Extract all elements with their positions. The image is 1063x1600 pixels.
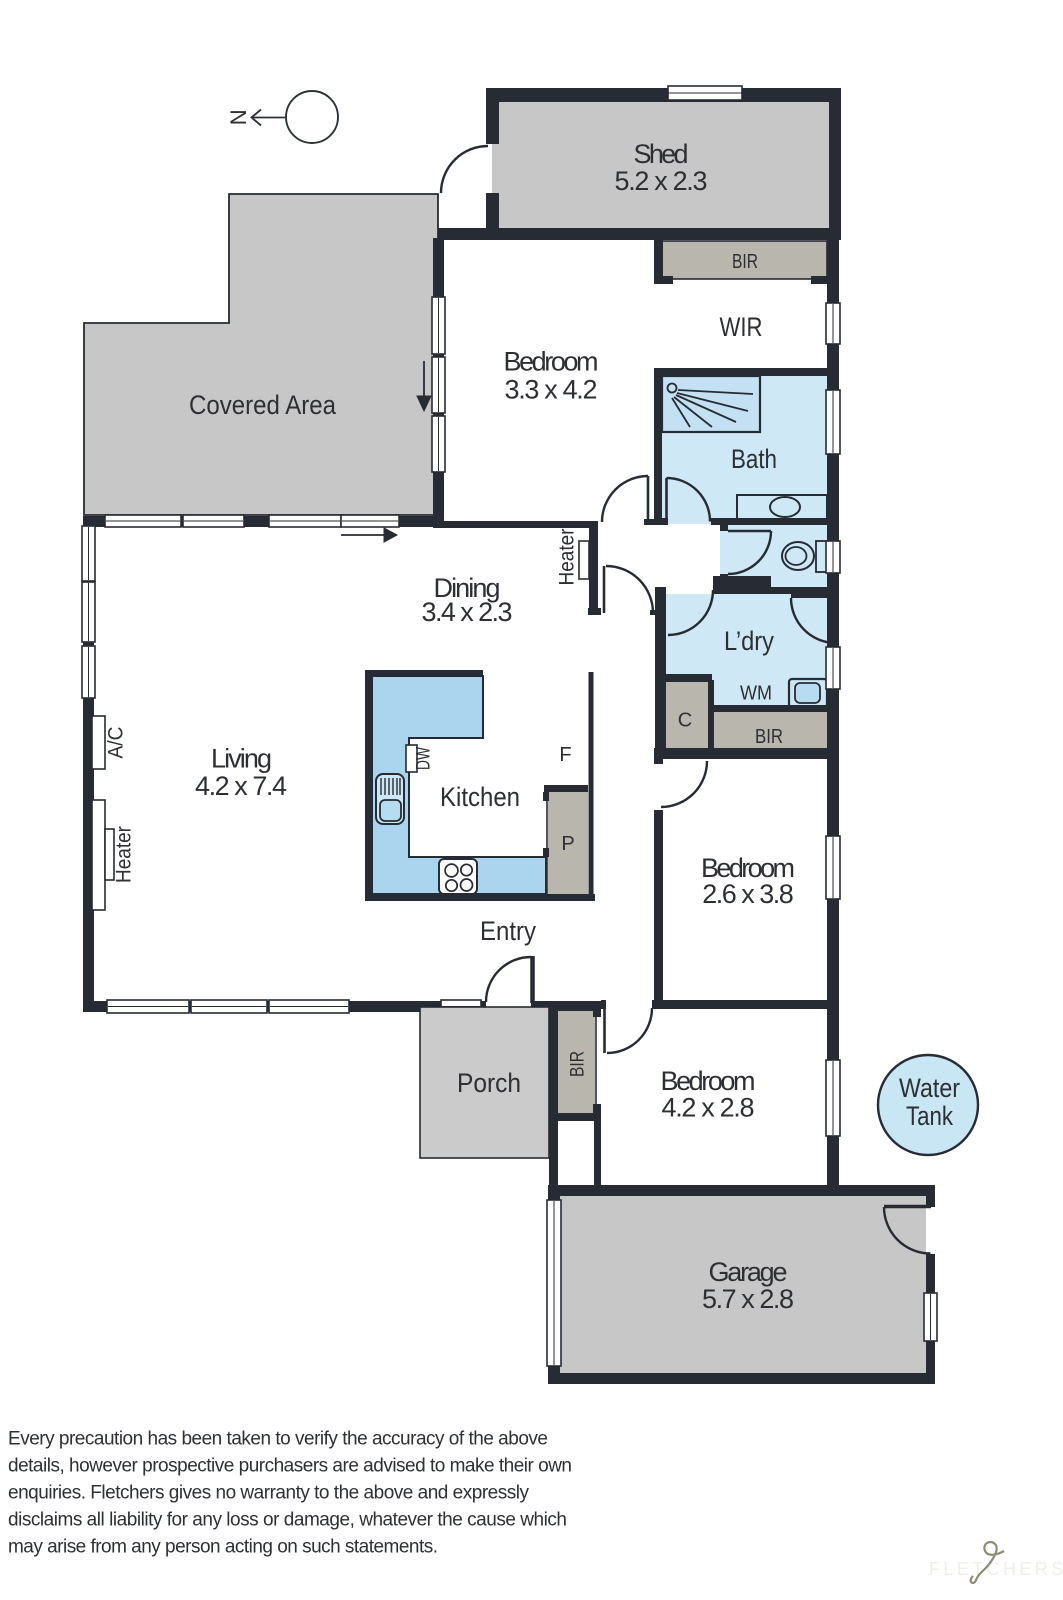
svg-text:BIR: BIR	[755, 726, 783, 748]
svg-text:may arise from any person acti: may arise from any person acting on such…	[8, 1537, 438, 1558]
svg-text:Bedroom: Bedroom	[504, 347, 599, 377]
svg-text:Bedroom: Bedroom	[661, 1066, 756, 1096]
svg-text:5.7 x 2.8: 5.7 x 2.8	[702, 1284, 794, 1314]
svg-text:Every precaution has been take: Every precaution has been taken to verif…	[8, 1429, 548, 1450]
svg-text:Heater: Heater	[556, 528, 579, 585]
svg-text:Water: Water	[899, 1073, 960, 1103]
svg-text:disclaims all liability for an: disclaims all liability for any loss or …	[8, 1510, 567, 1531]
svg-text:Heater: Heater	[113, 826, 136, 883]
svg-text:N: N	[226, 109, 251, 125]
svg-text:5.2 x 2.3: 5.2 x 2.3	[615, 166, 708, 196]
svg-text:BIR: BIR	[568, 1051, 589, 1077]
svg-text:4.2 x 2.8: 4.2 x 2.8	[662, 1093, 755, 1123]
svg-text:DW: DW	[414, 747, 435, 770]
svg-text:3.4 x 2.3: 3.4 x 2.3	[422, 597, 513, 627]
svg-text:A/C: A/C	[105, 727, 128, 759]
svg-text:2.6 x 3.8: 2.6 x 3.8	[702, 879, 794, 909]
svg-text:Shed: Shed	[634, 139, 689, 169]
svg-text:Covered Area: Covered Area	[189, 390, 337, 420]
svg-text:4.2 x 7.4: 4.2 x 7.4	[195, 771, 287, 801]
svg-text:Porch: Porch	[457, 1068, 521, 1098]
svg-text:Entry: Entry	[480, 916, 536, 946]
svg-text:Kitchen: Kitchen	[440, 782, 520, 812]
svg-text:details, however prospective p: details, however prospective purchasers …	[8, 1456, 572, 1477]
svg-text:C: C	[678, 710, 692, 732]
svg-text:Tank: Tank	[906, 1101, 953, 1131]
svg-text:L’dry: L’dry	[724, 626, 774, 656]
svg-text:Garage: Garage	[709, 1257, 788, 1287]
svg-text:Bath: Bath	[731, 444, 777, 474]
svg-text:FLETCHERS: FLETCHERS	[929, 1559, 1063, 1579]
svg-text:Living: Living	[211, 744, 272, 774]
svg-text:P: P	[561, 833, 574, 855]
svg-text:WIR: WIR	[720, 312, 763, 342]
svg-text:F: F	[559, 744, 571, 766]
svg-text:enquiries. Fletchers gives no: enquiries. Fletchers gives no warranty t…	[8, 1483, 530, 1504]
svg-text:BIR: BIR	[732, 251, 758, 273]
svg-text:3.3 x 4.2: 3.3 x 4.2	[505, 375, 598, 405]
svg-text:WM: WM	[740, 683, 772, 705]
